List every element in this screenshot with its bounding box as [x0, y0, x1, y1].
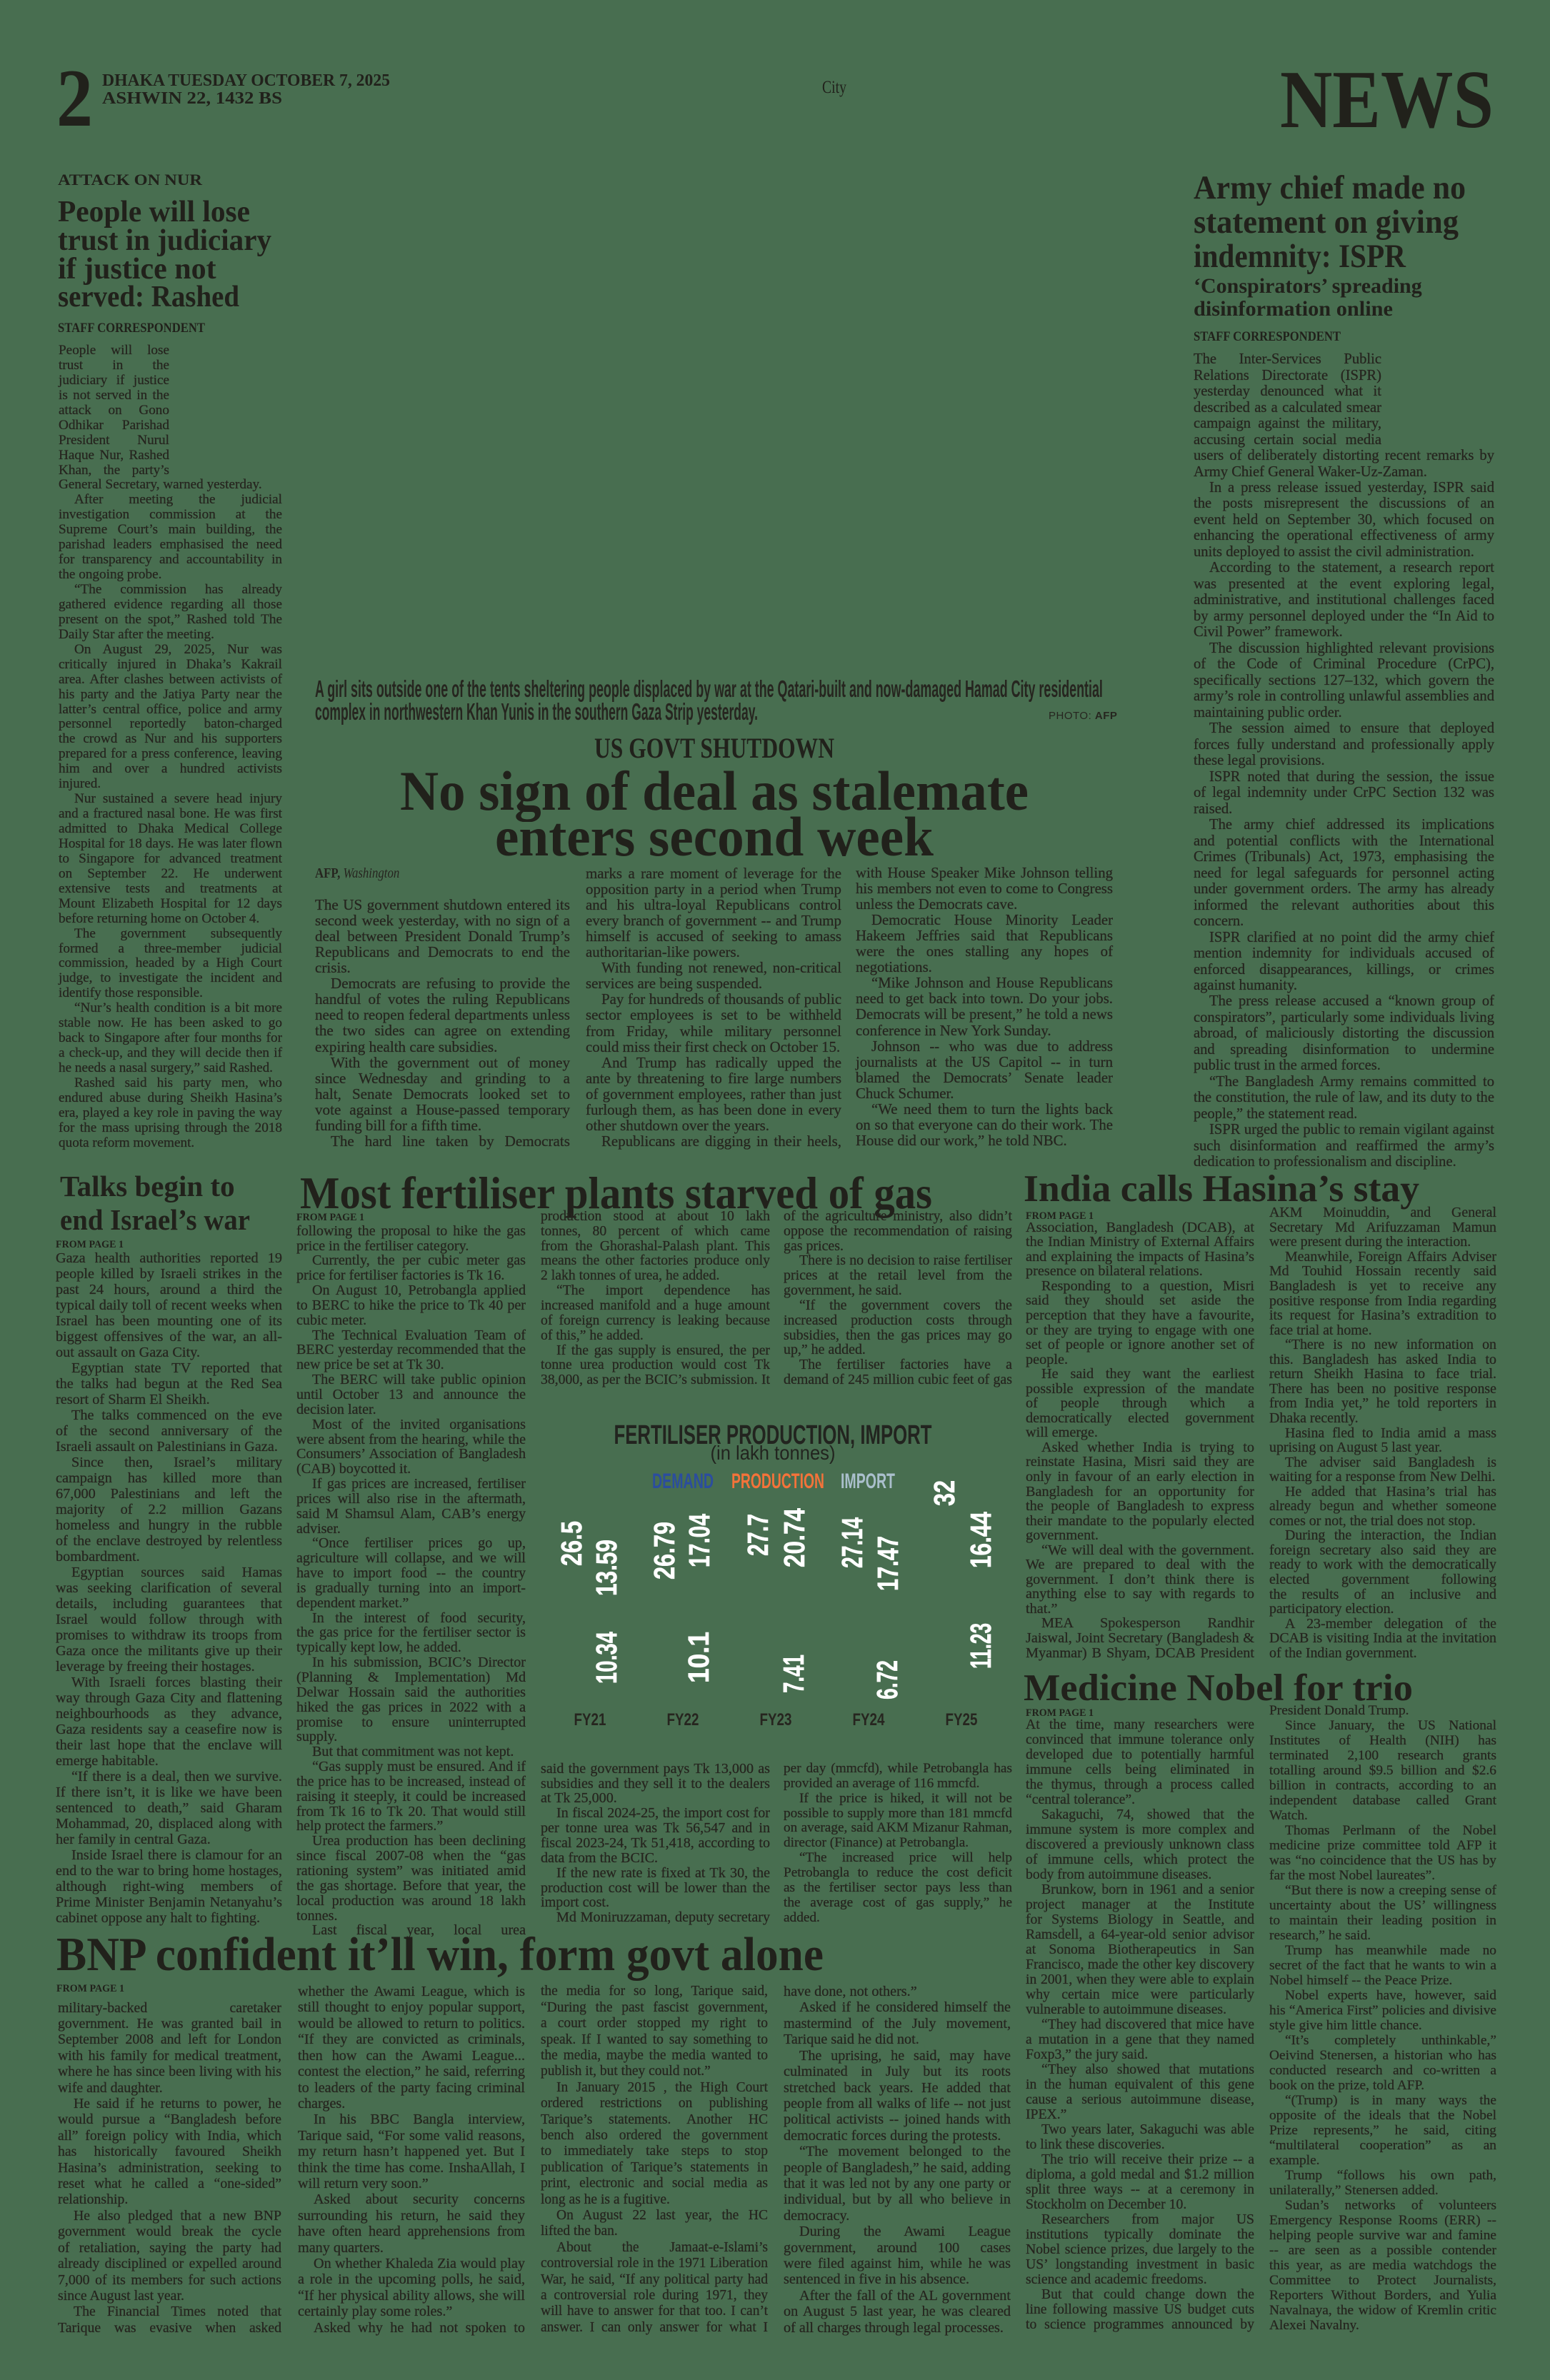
svg-text:7.41: 7.41 — [777, 1655, 810, 1693]
svg-text:FY23: FY23 — [760, 1710, 792, 1729]
svg-text:27.7: 27.7 — [741, 1514, 774, 1556]
svg-text:PRODUCTION: PRODUCTION — [731, 1470, 824, 1493]
svg-text:DEMAND: DEMAND — [652, 1470, 714, 1493]
svg-text:FY25: FY25 — [946, 1710, 978, 1729]
svg-text:20.74: 20.74 — [778, 1508, 811, 1567]
svg-text:11.23: 11.23 — [964, 1623, 997, 1669]
svg-text:(in lakh tonnes): (in lakh tonnes) — [711, 1442, 836, 1464]
svg-text:17.04: 17.04 — [683, 1514, 716, 1567]
svg-text:26.5: 26.5 — [555, 1521, 588, 1566]
svg-text:FY24: FY24 — [853, 1710, 886, 1729]
svg-text:26.79: 26.79 — [648, 1522, 681, 1580]
svg-text:FY22: FY22 — [667, 1710, 699, 1729]
svg-text:32: 32 — [928, 1480, 961, 1506]
svg-text:FY21: FY21 — [574, 1710, 606, 1729]
svg-text:13.59: 13.59 — [590, 1540, 623, 1596]
svg-text:6.72: 6.72 — [871, 1660, 904, 1699]
svg-text:10.1: 10.1 — [682, 1632, 715, 1683]
svg-text:17.47: 17.47 — [871, 1536, 904, 1591]
svg-text:IMPORT: IMPORT — [841, 1470, 895, 1493]
svg-text:16.44: 16.44 — [964, 1512, 997, 1568]
svg-text:10.34: 10.34 — [590, 1632, 623, 1684]
svg-text:27.14: 27.14 — [836, 1517, 869, 1568]
